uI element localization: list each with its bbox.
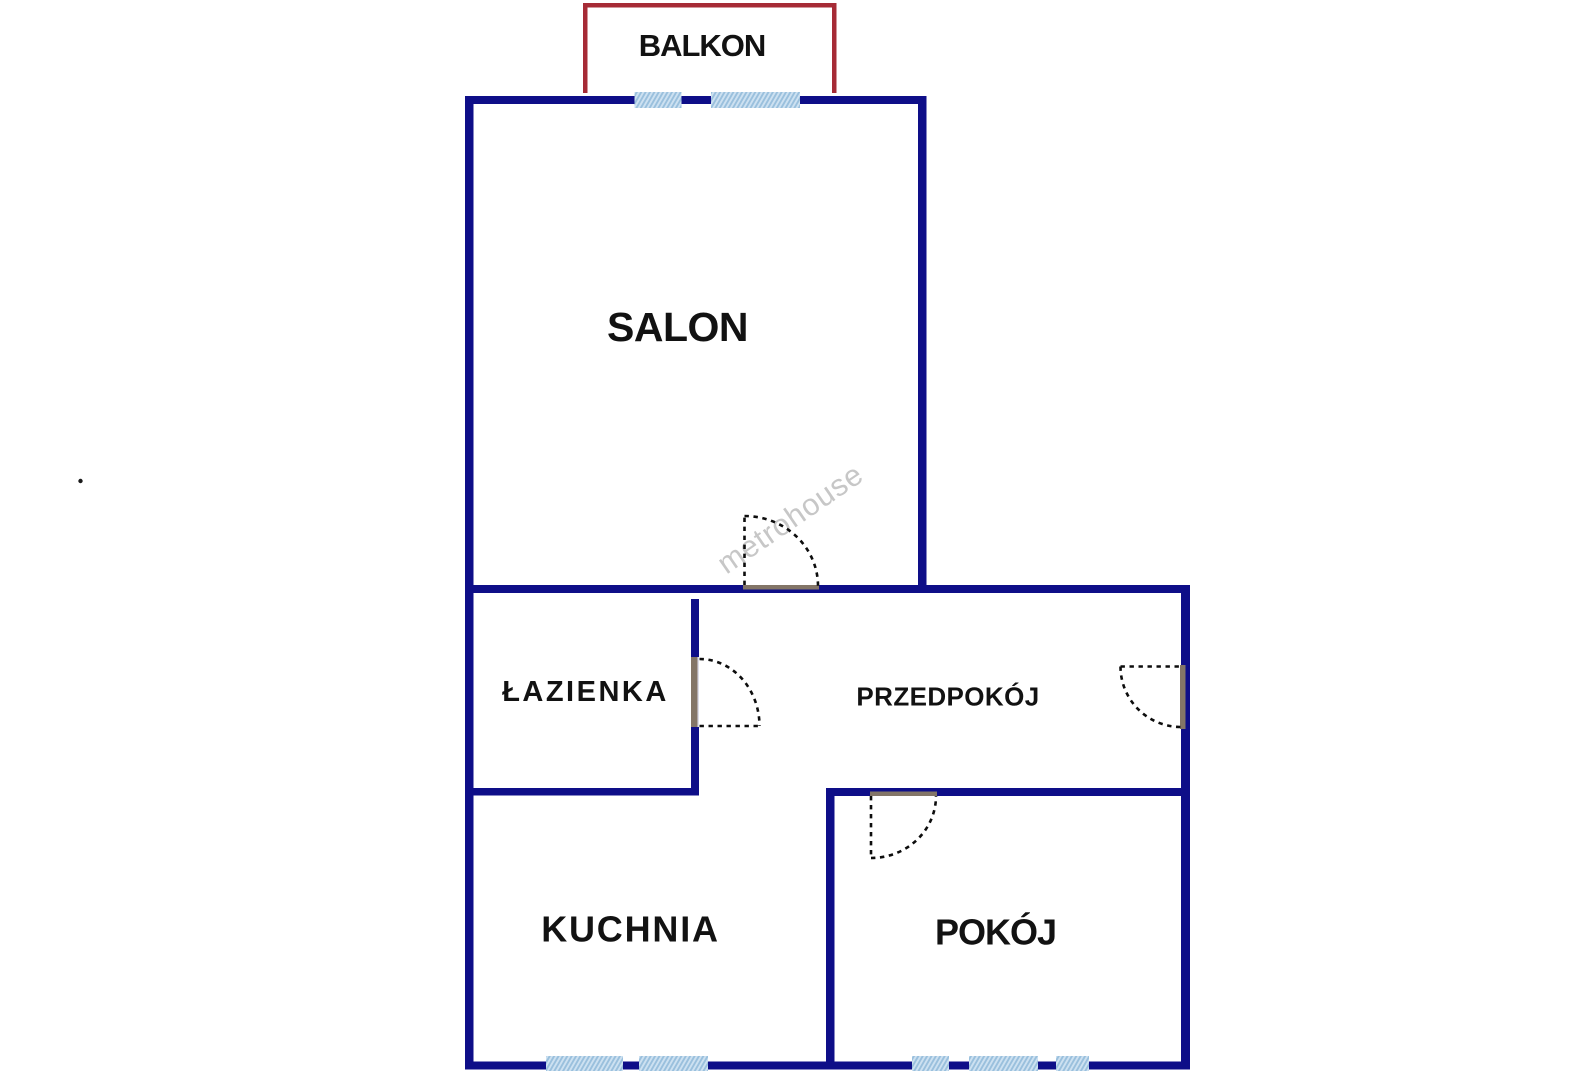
svg-text:PRZEDPOKÓJ: PRZEDPOKÓJ: [856, 682, 1039, 712]
svg-text:ŁAZIENKA: ŁAZIENKA: [502, 676, 669, 708]
svg-text:KUCHNIA: KUCHNIA: [541, 909, 720, 950]
svg-text:BALKON: BALKON: [639, 28, 766, 63]
svg-text:POKÓJ: POKÓJ: [935, 911, 1056, 953]
svg-text:SALON: SALON: [607, 304, 748, 350]
